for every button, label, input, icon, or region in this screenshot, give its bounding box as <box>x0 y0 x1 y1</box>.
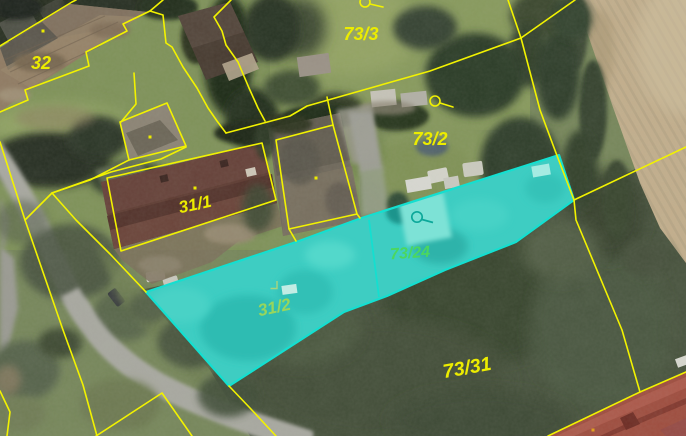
svg-text:32: 32 <box>31 53 51 73</box>
svg-text:73/24: 73/24 <box>390 244 431 264</box>
svg-text:73/3: 73/3 <box>343 24 378 44</box>
svg-text:73/2: 73/2 <box>412 129 447 149</box>
